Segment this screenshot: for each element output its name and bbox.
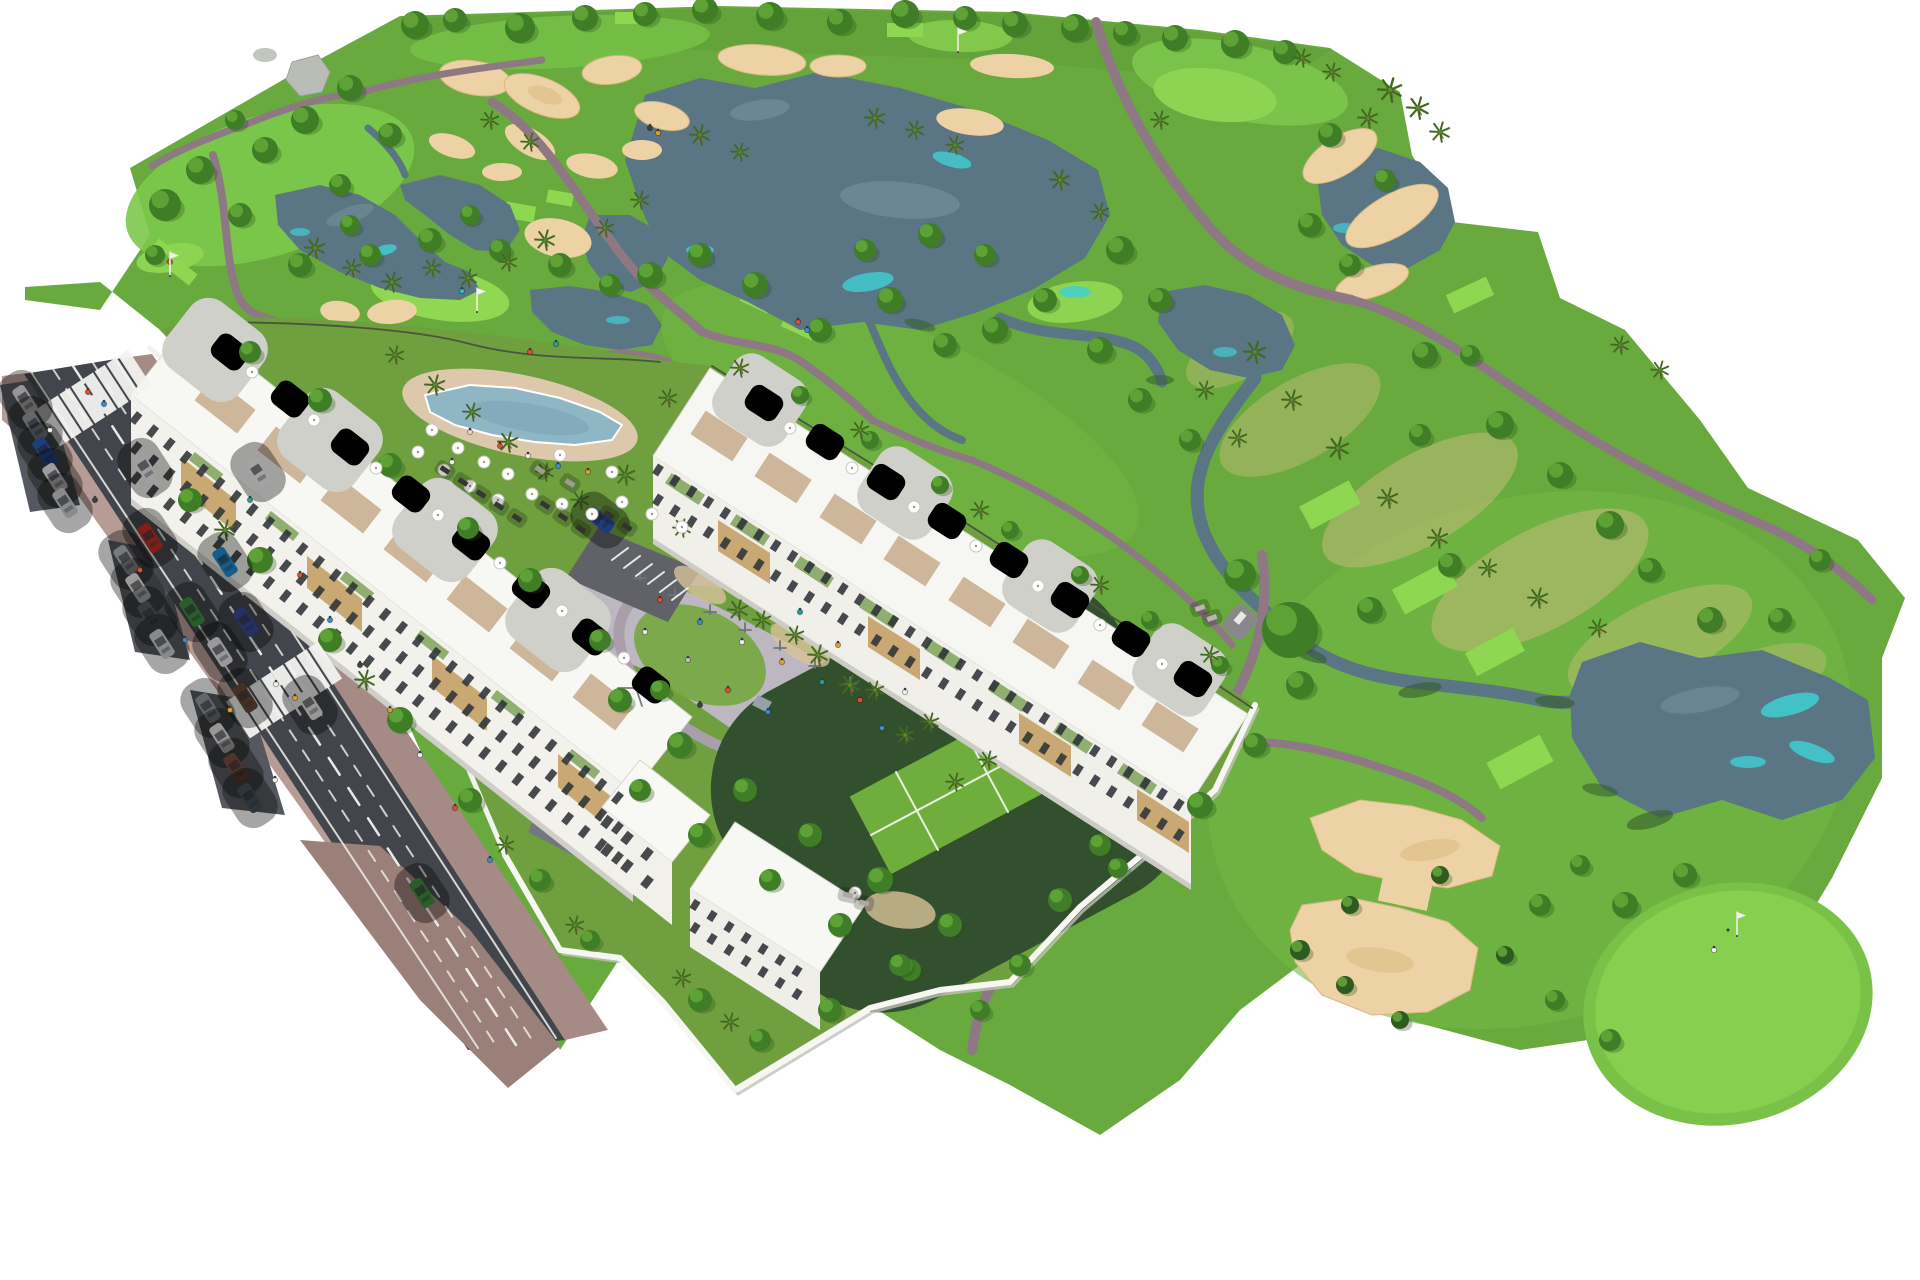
umbrella-pole xyxy=(913,506,915,508)
palm-crown xyxy=(603,226,606,229)
person-head xyxy=(299,571,302,574)
tree-highlight xyxy=(972,1001,983,1012)
tree-highlight xyxy=(869,868,883,882)
tree-highlight xyxy=(1462,346,1473,357)
tree-highlight xyxy=(1699,608,1713,622)
palm-crown xyxy=(1330,70,1333,73)
person-head xyxy=(451,458,454,461)
sun-lounger xyxy=(603,510,614,520)
tree-highlight xyxy=(1004,12,1018,26)
palm-crown xyxy=(698,133,702,137)
tree-highlight xyxy=(1547,991,1558,1002)
palm-crown xyxy=(1366,116,1370,120)
tree-highlight xyxy=(1164,26,1178,40)
tree-highlight xyxy=(188,157,203,172)
umbrella-pole xyxy=(621,501,623,503)
solar-panel xyxy=(280,390,300,409)
palm-crown xyxy=(848,683,852,687)
solar-panel xyxy=(754,394,775,412)
umbrella-pole xyxy=(457,447,459,449)
solar-panel xyxy=(876,473,897,491)
person-head xyxy=(555,340,558,343)
tree-highlight xyxy=(935,334,948,347)
sun-lounger xyxy=(539,500,550,510)
tree-highlight xyxy=(1337,977,1347,987)
tree-highlight xyxy=(1640,559,1653,572)
flag-base xyxy=(169,275,171,277)
palm-crown xyxy=(1486,566,1489,569)
palm-crown xyxy=(433,383,437,387)
tree-highlight xyxy=(293,107,308,122)
tree-highlight xyxy=(227,111,238,122)
umbrella-pole xyxy=(531,493,533,495)
solar-panel xyxy=(340,438,360,457)
umbrella-pole xyxy=(559,454,561,456)
sun-lounger xyxy=(534,465,545,475)
person-head xyxy=(329,616,332,619)
tree-highlight xyxy=(1091,835,1103,847)
palm-crown xyxy=(1658,368,1661,371)
tree-highlight xyxy=(230,204,243,217)
person-head xyxy=(727,686,730,689)
water-cyan xyxy=(1730,756,1766,768)
tree-highlight xyxy=(932,477,942,487)
palm-crown xyxy=(1236,436,1239,439)
water-cyan xyxy=(1213,347,1237,357)
tree-highlight xyxy=(1002,522,1012,532)
tree-highlight xyxy=(690,989,703,1002)
tree-highlight xyxy=(339,76,353,90)
person-head xyxy=(527,452,530,455)
palm-crown xyxy=(986,758,989,761)
tree-highlight xyxy=(445,9,458,22)
person-head xyxy=(469,428,472,431)
umbrella-pole xyxy=(681,526,683,528)
tree-highlight xyxy=(531,870,543,882)
palm-crown xyxy=(978,508,981,511)
car xyxy=(148,628,176,661)
palm-crown xyxy=(738,150,741,153)
tree-highlight xyxy=(1531,895,1543,907)
palm-crown xyxy=(953,780,956,783)
sun-lounger xyxy=(493,501,504,511)
tree-highlight xyxy=(1411,425,1423,437)
tree-highlight xyxy=(582,931,593,942)
palm-crown xyxy=(1618,343,1621,346)
tree-highlight xyxy=(800,824,813,837)
person-head xyxy=(781,658,784,661)
tree-highlight xyxy=(758,3,773,18)
solar-panel xyxy=(999,551,1020,569)
tree-highlight xyxy=(1275,41,1288,54)
tree-highlight xyxy=(1598,512,1613,527)
person-head xyxy=(489,856,492,859)
car xyxy=(51,487,79,520)
tree-highlight xyxy=(1341,255,1353,267)
tree-highlight xyxy=(241,342,253,354)
palm-crown xyxy=(393,353,396,356)
tree-highlight xyxy=(744,273,758,287)
tree-highlight xyxy=(1811,550,1823,562)
tree-highlight xyxy=(891,955,903,967)
sun-lounger xyxy=(843,892,854,899)
person-head xyxy=(649,124,652,127)
palm-crown xyxy=(573,923,576,926)
palm-crown xyxy=(760,618,763,621)
tree-highlight xyxy=(1063,15,1078,30)
palm-crown xyxy=(858,428,861,431)
sun-lounger xyxy=(621,522,632,532)
tree-highlight xyxy=(320,629,333,642)
tree-highlight xyxy=(1770,609,1783,622)
person-head xyxy=(904,688,907,691)
tree-highlight xyxy=(1150,289,1163,302)
tree-highlight xyxy=(420,229,433,242)
tree-highlight xyxy=(690,824,703,837)
person-head xyxy=(806,326,809,329)
umbrella-pole xyxy=(623,657,625,659)
tree-highlight xyxy=(1432,867,1442,877)
tree-highlight xyxy=(690,244,703,257)
car xyxy=(232,606,260,639)
tree-highlight xyxy=(460,789,473,802)
palm-crown xyxy=(680,976,683,979)
bunker xyxy=(810,55,866,77)
water-cyan xyxy=(1059,286,1091,298)
umbrella-pole xyxy=(437,514,439,516)
tree-highlight xyxy=(462,206,473,217)
tree-highlight xyxy=(491,240,503,252)
palm-crown xyxy=(873,688,876,691)
tree-highlight xyxy=(631,780,643,792)
tree-highlight xyxy=(652,681,663,692)
person-head xyxy=(1713,946,1716,949)
sun-lounger xyxy=(1194,604,1205,612)
person-head xyxy=(49,426,52,429)
person-head xyxy=(275,680,278,683)
palm-crown xyxy=(1596,626,1599,629)
water-cyan xyxy=(606,316,630,324)
person-head xyxy=(249,496,252,499)
tree-highlight xyxy=(1115,22,1128,35)
solar-panel xyxy=(1183,670,1204,688)
person-head xyxy=(557,462,560,465)
palm-crown xyxy=(728,1020,731,1023)
tree-highlight xyxy=(254,138,268,152)
tree-highlight xyxy=(751,1030,763,1042)
palm-crown xyxy=(816,653,820,657)
tree-highlight xyxy=(380,124,393,137)
solar-panel xyxy=(401,485,421,504)
tree-highlight xyxy=(1440,554,1453,567)
palm-crown xyxy=(528,140,531,143)
car xyxy=(244,456,272,489)
tree-highlight xyxy=(249,548,263,562)
umbrella-pole xyxy=(313,419,315,421)
tree-highlight xyxy=(1130,389,1143,402)
tree-highlight xyxy=(735,779,748,792)
tree-highlight xyxy=(403,12,418,27)
tree-highlight xyxy=(1497,947,1507,957)
rock-small xyxy=(253,48,277,62)
tree-highlight xyxy=(601,275,613,287)
tree-highlight xyxy=(955,7,968,20)
tree-highlight xyxy=(1614,893,1628,907)
person-head xyxy=(461,287,464,290)
palm-crown xyxy=(793,633,796,636)
tree-highlight xyxy=(574,6,588,20)
person-head xyxy=(94,496,97,499)
palm-crown xyxy=(623,473,627,477)
aerial-render-stage xyxy=(0,0,1920,1280)
umbrella-pole xyxy=(851,467,853,469)
sun-lounger xyxy=(557,512,568,522)
tree-highlight xyxy=(342,216,353,227)
umbrella-pole xyxy=(507,473,509,475)
tree-highlight xyxy=(180,489,193,502)
tree-highlight xyxy=(331,175,343,187)
palm-crown xyxy=(1253,350,1257,354)
tree-highlight xyxy=(879,288,893,302)
water-cyan xyxy=(290,228,310,236)
tree-highlight xyxy=(1572,856,1583,867)
tree-highlight xyxy=(1223,31,1238,46)
person-head xyxy=(741,638,744,641)
palm-crown xyxy=(350,266,353,269)
car xyxy=(408,877,436,910)
person-head xyxy=(87,388,90,391)
tree-highlight xyxy=(1110,859,1121,870)
tree-highlight xyxy=(1675,864,1688,877)
sun-lounger xyxy=(457,477,468,487)
person-head xyxy=(644,628,647,631)
palm-crown xyxy=(390,280,394,284)
tree-highlight xyxy=(290,254,303,267)
bunker xyxy=(482,163,522,181)
tree-highlight xyxy=(1108,237,1123,252)
palm-crown xyxy=(543,238,547,242)
person-head xyxy=(799,608,802,611)
umbrella-pole xyxy=(591,513,593,515)
tree-highlight xyxy=(1226,561,1244,579)
palm-crown xyxy=(1098,583,1101,586)
person-head xyxy=(767,708,770,711)
person-head xyxy=(389,706,392,709)
sun-lounger xyxy=(859,900,870,907)
person-head xyxy=(294,694,297,697)
tree-highlight xyxy=(1011,955,1023,967)
tree-highlight xyxy=(1392,1012,1402,1022)
solar-panel xyxy=(220,343,240,362)
tree-highlight xyxy=(1292,941,1303,952)
palm-crown xyxy=(430,266,433,269)
tree-highlight xyxy=(1050,889,1063,902)
umbrella-pole xyxy=(375,467,377,469)
person-head xyxy=(837,641,840,644)
person-head xyxy=(529,348,532,351)
car xyxy=(131,452,159,485)
palm-crown xyxy=(1438,130,1442,134)
tree-highlight xyxy=(1359,598,1373,612)
umbrella-pole xyxy=(483,461,485,463)
palm-crown xyxy=(488,118,491,121)
tree-highlight xyxy=(829,10,843,24)
palm-crown xyxy=(913,128,916,131)
palm-crown xyxy=(313,246,317,250)
tree-highlight xyxy=(920,224,933,237)
golf-resort-aerial-render xyxy=(0,0,1920,1280)
palm-crown xyxy=(1336,446,1340,450)
palm-crown xyxy=(1536,596,1540,600)
tree-highlight xyxy=(591,630,603,642)
palm-crown xyxy=(1388,88,1392,92)
umbrella-pole xyxy=(561,610,563,612)
car xyxy=(206,636,234,669)
palm-crown xyxy=(903,733,906,736)
tree-highlight xyxy=(459,518,471,530)
person-head xyxy=(499,442,502,445)
person-head xyxy=(103,400,106,403)
umbrella-pole xyxy=(975,545,977,547)
palm-crown xyxy=(466,276,469,279)
palm-crown xyxy=(738,366,741,369)
car xyxy=(211,546,239,579)
umbrella-pole xyxy=(1099,624,1101,626)
umbrella-pole xyxy=(1161,663,1163,665)
sun-lounger xyxy=(439,465,450,475)
tree-highlight xyxy=(635,3,648,16)
palm-crown xyxy=(873,116,877,120)
tree-highlight xyxy=(520,569,533,582)
person-head xyxy=(359,661,362,664)
tree-highlight xyxy=(1089,338,1103,352)
solar-panel xyxy=(937,512,958,530)
tree-highlight xyxy=(639,263,653,277)
umbrella-pole xyxy=(431,429,433,431)
palm-crown xyxy=(1208,653,1211,656)
palm-crown xyxy=(363,678,367,682)
person-head xyxy=(419,751,422,754)
umbrella-pole xyxy=(499,562,501,564)
palm-crown xyxy=(1436,536,1440,540)
person-head xyxy=(274,776,277,779)
person-head xyxy=(454,804,457,807)
tree-highlight xyxy=(893,1,908,16)
tree-highlight xyxy=(761,870,773,882)
sun-lounger xyxy=(575,524,586,534)
palm-crown xyxy=(1290,398,1294,402)
car xyxy=(236,782,264,815)
umbrella-pole xyxy=(561,503,563,505)
palm-crown xyxy=(1158,118,1161,121)
flag-base xyxy=(1736,935,1738,937)
car xyxy=(296,689,324,722)
umbrella-pole xyxy=(1037,585,1039,587)
tree-highlight xyxy=(610,689,623,702)
tree-highlight xyxy=(1245,734,1258,747)
tree-highlight xyxy=(1549,463,1563,477)
tree-highlight xyxy=(361,245,373,257)
tree-highlight xyxy=(1288,672,1303,687)
person-head xyxy=(821,678,824,681)
person-head xyxy=(699,701,702,704)
palm-crown xyxy=(503,843,506,846)
tree-highlight xyxy=(940,914,953,927)
palm-crown xyxy=(1300,56,1303,59)
person-head xyxy=(659,596,662,599)
sun-lounger xyxy=(511,513,522,523)
tree-highlight xyxy=(1320,124,1333,137)
umbrella-pole xyxy=(651,513,653,515)
tree-highlight xyxy=(1414,343,1428,357)
tree-highlight xyxy=(151,191,169,209)
palm-crown xyxy=(506,440,510,444)
tree-highlight xyxy=(550,254,563,267)
car xyxy=(136,522,164,555)
umbrella-pole xyxy=(251,371,253,373)
palm-crown xyxy=(953,143,956,146)
person-head xyxy=(797,318,800,321)
umbrella-pole xyxy=(417,451,419,453)
palm-crown xyxy=(638,198,641,201)
palm-crown xyxy=(666,396,669,399)
tree-highlight xyxy=(1142,612,1152,622)
person-head xyxy=(687,656,690,659)
palm-crown xyxy=(1203,388,1206,391)
tree-highlight xyxy=(1601,1030,1613,1042)
tree-highlight xyxy=(147,246,158,257)
golf-ball-dot xyxy=(1727,929,1730,932)
tree-highlight xyxy=(856,240,868,252)
tree-highlight xyxy=(1189,793,1203,807)
tree-highlight xyxy=(820,999,833,1012)
tree-highlight xyxy=(1376,170,1388,182)
tree-highlight xyxy=(507,15,524,32)
tree-highlight xyxy=(1488,412,1503,427)
palm-crown xyxy=(223,528,227,532)
person-head xyxy=(859,696,862,699)
car xyxy=(231,682,259,715)
car xyxy=(178,596,206,629)
tree-highlight xyxy=(1181,430,1193,442)
tree-highlight xyxy=(976,245,988,257)
palm-crown xyxy=(928,720,931,723)
tree-highlight xyxy=(984,318,998,332)
solar-panel xyxy=(1121,630,1142,648)
person-head xyxy=(184,636,187,639)
tree-highlight xyxy=(310,389,323,402)
solar-panel xyxy=(1060,591,1081,609)
flag-base xyxy=(957,51,959,53)
tree-highlight xyxy=(669,733,683,747)
palm-crown xyxy=(1386,496,1390,500)
palm-crown xyxy=(1416,106,1420,110)
person-head xyxy=(587,468,590,471)
palm-crown xyxy=(1098,210,1101,213)
tree-highlight xyxy=(1072,567,1082,577)
tree-highlight xyxy=(1342,897,1352,907)
palm-crown xyxy=(1058,178,1062,182)
solar-panel xyxy=(815,433,836,451)
sun-lounger xyxy=(564,478,575,488)
umbrella-pole xyxy=(789,427,791,429)
tree-highlight xyxy=(1266,605,1297,636)
person-head xyxy=(657,129,660,132)
tree-highlight xyxy=(830,914,843,927)
tree-highlight xyxy=(792,387,802,397)
tree-highlight xyxy=(1300,214,1313,227)
palm-crown xyxy=(470,410,473,413)
